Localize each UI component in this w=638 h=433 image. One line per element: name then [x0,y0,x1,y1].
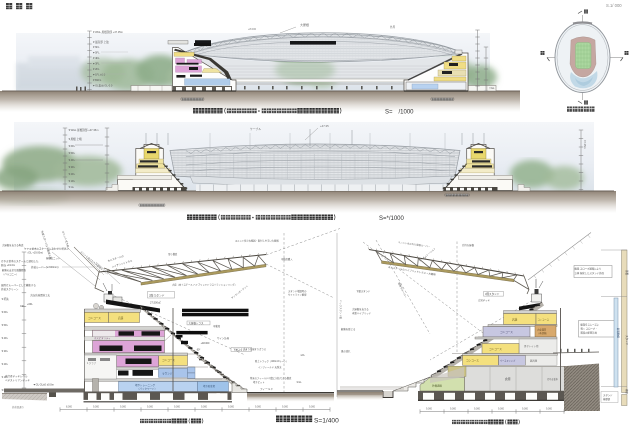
svg-text:風の流れ: 風の流れ [341,349,351,353]
svg-text:▼GL: ▼GL [296,381,302,384]
svg-text:外苑西通り: 外苑西通り [12,405,24,409]
svg-text:インフィールド 天然芝: インフィールド 天然芝 [258,365,282,369]
svg-text:▽GL: ▽GL [489,86,495,90]
svg-text:9,000: 9,000 [201,406,208,409]
svg-text:外部スロープより直接入場: 外部スロープより直接入場 [40,230,53,260]
svg-text:9,000: 9,000 [228,406,235,409]
svg-text:（バルコニー）: （バルコニー） [2,272,19,276]
svg-text:9,000: 9,000 [93,406,100,409]
svg-text:フィールド: フィールド [260,387,273,391]
svg-text:ユニット式大庇: ユニット式大庇 [61,230,70,248]
svg-text:8,000: 8,000 [66,406,73,409]
svg-text:▼4FL: ▼4FL [93,56,101,60]
svg-text:+48.000: +48.000 [201,342,210,345]
svg-text:コンコース: コンコース [88,316,101,320]
svg-text:男子トイレ他: 男子トイレ他 [524,344,539,348]
svg-text:ユニット化され輸送・取付しやすい大屋根: ユニット化され輸送・取付しやすい大屋根 [235,239,279,243]
svg-text:▼3FL: ▼3FL [93,62,101,66]
svg-text:▼3FL: ▼3FL [1,349,9,353]
svg-text:▼2FL: ▼2FL [1,362,9,366]
svg-text:大庇（木＋スチール ハイブリッドトラス＋テンションリング）: 大庇（木＋スチール ハイブリッドトラス＋テンションリング） [172,283,237,287]
svg-text:9,000: 9,000 [498,408,505,411]
svg-text:下層スタンド: 下層スタンド [356,289,371,293]
svg-text:+8.000: +8.000 [248,27,257,31]
svg-text:▼2FL: ▼2FL [68,172,76,176]
svg-text:▼5FL: ▼5FL [93,51,101,55]
svg-text:▼4FL: ▼4FL [1,336,9,340]
svg-text:9,000: 9,000 [426,408,433,411]
svg-text:▼GL表示 GL-0.0: ▼GL表示 GL-0.0 [93,84,113,88]
svg-text:▼GL GL±0 ±0.0m: ▼GL GL±0 ±0.0m [33,383,54,387]
svg-text:9,000: 9,000 [282,406,289,409]
svg-text:外装ルーバー(w:600mm): 外装ルーバー(w:600mm) [31,265,59,269]
svg-text:9,000: 9,000 [147,406,154,409]
svg-text:60°: 60° [197,348,201,351]
svg-text:立見デッキ: 立見デッキ [478,298,491,302]
svg-text:▼6FL: ▼6FL [1,310,9,314]
svg-text:木製ハイブリッド: 木製ハイブリッド [352,311,372,315]
svg-text:（バックヤード）: （バックヤード） [137,387,157,391]
svg-text:9,000: 9,000 [120,406,127,409]
svg-text:▼FL: ▼FL [300,354,306,357]
svg-text:（GL +19.00m）: （GL +19.00m） [26,251,45,255]
svg-text:▼1FL: ▼1FL [68,179,76,183]
svg-text:軒庇 +19.0m: 軒庇 +19.0m [1,263,15,267]
svg-text:片持ち屋根: 片持ち屋根 [462,243,475,247]
svg-text:サイトライン確保: サイトライン確保 [288,293,307,297]
svg-text:可動席購入: 可動席購入 [281,257,293,261]
svg-text:観客を感じる: 観客を感じる [341,327,356,331]
svg-text:ユニット化された屋根ルーバー: ユニット化された屋根ルーバー [398,240,431,249]
svg-text:植栽 スロープ通路により: 植栽 スロープ通路により [575,267,602,271]
svg-text:外装スクリーン: 外装スクリーン [1,287,19,291]
svg-text:CR・: CR・ [20,305,26,308]
svg-text:+47.35: +47.35 [320,124,329,128]
svg-text:可動席: 可動席 [213,324,221,328]
svg-text:S=1/400: S=1/400 [314,418,339,425]
svg-text:スタンド増設時の: スタンド増設時の [288,289,307,293]
svg-text:大屋根: 大屋根 [300,22,309,27]
svg-text:▼5FL: ▼5FL [1,323,9,327]
svg-text:S=*/1000: S=*/1000 [379,216,405,222]
svg-text:9,000: 9,000 [174,406,181,409]
svg-text:コンコース: コンコース [500,330,513,334]
svg-text:9,000: 9,000 [309,406,316,409]
svg-text:ペデストリアンデッキ: ペデストリアンデッキ [5,378,30,382]
svg-text:▼B1FL: ▼B1FL [93,78,102,82]
svg-text:コンコース: コンコース [489,347,502,351]
svg-text:27,500㎡: 27,500㎡ [150,301,161,305]
svg-text:ユニット化された大屋根ルーバー: ユニット化された大屋根ルーバー [79,250,109,276]
svg-text:▼GL: ▼GL [68,185,75,189]
svg-text:▼5FL: ▼5FL [68,151,76,155]
svg-text:バックスタンド軸: バックスタンド軸 [339,300,343,320]
svg-text:観客動線: 観客動線 [617,328,621,339]
svg-text:外構通路: 外構通路 [432,384,443,388]
svg-text:9,000: 9,000 [546,408,553,411]
svg-text:大屋根を支える构造: 大屋根を支える构造 [2,243,24,247]
svg-text:9,000: 9,000 [450,408,457,411]
svg-text:大屋根トラス: 大屋根トラス [189,321,204,325]
svg-text:スタンド: スタンド [603,393,613,397]
svg-text:スタンド: スタンド [625,335,629,346]
svg-text:けやき並木のスケールと調和した: けやき並木のスケールと調和した [1,259,39,263]
svg-text:基礎: 基礎 [625,389,629,394]
svg-text:サイン計画: サイン計画 [217,336,230,340]
svg-text:+6FL: +6FL [27,303,33,306]
svg-text:観客の安全な避難経路: 観客の安全な避難経路 [2,268,27,272]
svg-text:9,000: 9,000 [522,408,529,411]
svg-text:▼最高部 上弦: ▼最高部 上弦 [93,40,110,44]
svg-text:9,000: 9,000 [255,406,262,409]
svg-text:▼2FL: ▼2FL [93,67,101,71]
svg-text:地下トレーニング: 地下トレーニング [135,383,156,387]
svg-text:S= /1000: S= /1000 [385,110,414,116]
svg-text:地下ピット: 地下ピット [253,380,265,384]
svg-text:外周: 外周 [390,25,396,29]
svg-text:9,000: 9,000 [474,408,481,411]
svg-text:▼屋根 上端: ▼屋根 上端 [68,137,82,141]
svg-text:コンコース: コンコース [466,359,479,363]
svg-text:歩行者デッキレベル: 歩行者デッキレベル [5,374,28,378]
svg-text:大庇先端環境工夫: 大庇先端環境工夫 [30,293,51,297]
svg-text:将来のフィールド可変に対応できる構造: 将来のフィールド可変に対応できる構造 [250,376,292,380]
svg-text:3階スタンド: 3階スタンド [485,292,500,296]
svg-text:倉庫: 倉庫 [505,377,511,381]
svg-text:47.35m: 47.35m [583,140,587,149]
svg-text:店舗: 店舗 [118,316,124,320]
svg-text:陸上トラック（400m×9レーン）: 陸上トラック（400m×9レーン） [255,359,289,363]
svg-text:ケヤキ並木のスケールにあわせた軒高さ: ケヤキ並木のスケールにあわせた軒高さ [24,247,70,251]
svg-text:屋根: 屋根 [625,270,629,276]
svg-text:▼WGL 屋根頂部 +47.35m: ▼WGL 屋根頂部 +47.35m [93,30,123,34]
svg-text:店舗: 店舗 [512,318,518,322]
svg-text:ケーブル: ケーブル [250,127,261,131]
svg-text:ラウンジ: ラウンジ [162,372,173,376]
svg-text:器具庫: 器具庫 [530,359,538,363]
svg-text:大屋根を支える: 大屋根を支える [352,307,369,311]
svg-text:地下駐車場: 地下駐車場 [203,384,216,388]
svg-text:立体 緑化したスタンド外周: 立体 緑化したスタンド外周 [575,271,605,275]
svg-text:▼1FL ±0.0: ▼1FL ±0.0 [93,73,106,77]
svg-text:吊り構造: 吊り構造 [168,252,178,256]
svg-text:2階スタンド: 2階スタンド [149,294,165,298]
svg-text:▼軒先: ▼軒先 [1,297,9,301]
svg-text:基礎部: 基礎部 [603,397,611,401]
svg-text:ホスピタリティ: ホスピタリティ [94,336,111,340]
svg-text:▼4FL: ▼4FL [68,158,76,162]
svg-text:風除けルーバーとして機能する: 風除けルーバーとして機能する [1,283,36,287]
svg-text:▼6FL: ▼6FL [93,45,101,49]
svg-text:▼6FL: ▼6FL [68,144,76,148]
svg-text:縦格子ルーバー: 縦格子ルーバー [397,282,408,299]
svg-text:▼WGL 屋根頂部 +47.35m: ▼WGL 屋根頂部 +47.35m [68,128,98,132]
svg-text:S.1/ 000: S.1/ 000 [606,3,622,8]
svg-text:▼3FL: ▼3FL [68,165,76,169]
svg-text:屋根ユニット: 屋根ユニット [46,256,61,260]
